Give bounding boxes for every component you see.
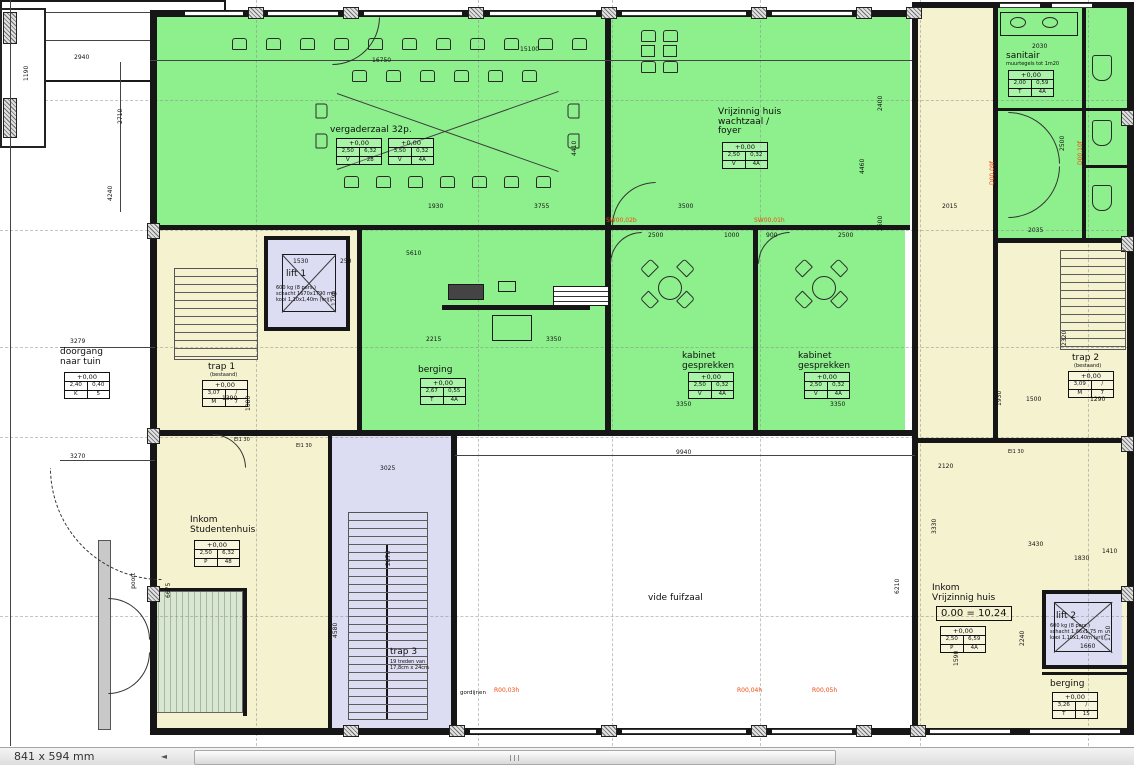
wall-sanitair <box>995 108 1134 111</box>
dimension: 900 <box>766 233 777 239</box>
chair <box>522 70 537 82</box>
room-label-vide: vide fuifzaal <box>648 594 703 604</box>
room-info-table: +0,002,000,59T4A <box>1008 70 1054 97</box>
dimension: 3350 <box>830 402 845 408</box>
dimension: 1590 <box>954 651 960 666</box>
column-hatch <box>1121 436 1134 452</box>
chair <box>300 38 315 50</box>
chair <box>488 70 503 82</box>
door-code: R00,04h <box>737 687 762 694</box>
sink <box>1042 17 1058 28</box>
chair <box>663 61 678 73</box>
column-hatch <box>601 725 617 737</box>
column-hatch <box>906 7 922 19</box>
dimension: 2710 <box>118 109 124 124</box>
dimension: 3025 <box>380 466 395 472</box>
room-info-table: +0,003,500,32V4A <box>388 138 434 165</box>
column-hatch <box>147 586 160 602</box>
room-info-table: +0,002,500,32V4A <box>688 372 734 399</box>
grid-axis <box>920 0 921 746</box>
dimension: 2320 <box>1062 331 1068 346</box>
floorplan-canvas[interactable]: vergaderzaal 32p. +0,002,506,32V28 +0,00… <box>0 0 1134 748</box>
chair <box>454 70 469 82</box>
room-info-table: +0,002,506,32P48 <box>194 540 240 567</box>
scrollbar-grip-icon <box>510 755 520 761</box>
room-info-table: +0,002,500,32V4A <box>804 372 850 399</box>
dimension: 1930 <box>428 204 443 210</box>
chair <box>402 38 417 50</box>
dimension: 250 <box>340 259 351 265</box>
chair <box>344 176 359 188</box>
window <box>1052 3 1092 8</box>
dimension: 15100 <box>520 47 539 53</box>
wall-sanitair <box>1082 8 1086 238</box>
dimension: 2500 <box>838 233 853 239</box>
room-sublabel: 600 kg (8 pers.) schacht 1670x1790 mm ko… <box>276 286 337 303</box>
grid-axis <box>0 230 1134 231</box>
wall <box>451 430 457 730</box>
dimension: 3350 <box>546 337 561 343</box>
bar-equipment <box>498 281 516 292</box>
dimension: 5610 <box>406 251 421 257</box>
bar-equipment <box>448 284 484 300</box>
wall <box>157 430 917 436</box>
dim-line <box>46 12 150 13</box>
column-hatch <box>1121 110 1134 126</box>
room-info-table: +0,002,506,59P4A <box>940 626 986 653</box>
dim-line <box>150 60 912 61</box>
dimension: 3330 <box>932 519 938 534</box>
dimension: 6675 <box>166 583 172 598</box>
floorplan-viewer: vergaderzaal 32p. +0,002,506,32V28 +0,00… <box>0 0 1134 765</box>
dimension: 3350 <box>676 402 691 408</box>
chair <box>641 30 656 42</box>
dim-line <box>46 40 150 41</box>
grid-axis <box>0 100 1134 101</box>
room-sublabel: 600 kg (8 pers.) schacht 1,66x1,75 m koo… <box>1050 624 1105 641</box>
door-code: R00,05h <box>812 687 837 694</box>
door-code: SW00,01h <box>754 217 785 224</box>
room-info-table: +0,002,400,40K5 <box>64 372 110 399</box>
fire-rating-label: EI1 30 <box>296 444 312 450</box>
dimension: 2876 <box>386 551 392 566</box>
dimension: 2500 <box>648 233 663 239</box>
horizontal-scrollbar-track[interactable] <box>184 749 1134 764</box>
dimension: 1390 <box>222 396 237 402</box>
room-info-table: +0,003,09/M7 <box>1068 371 1114 398</box>
wall-berging2 <box>1042 672 1130 675</box>
room-sublabel: (bestaand) <box>210 373 237 379</box>
chair <box>266 38 281 50</box>
column-hatch <box>449 725 465 737</box>
wall-lift1 <box>264 236 268 331</box>
room-label-lift1: lift 1 <box>286 270 306 280</box>
dimension: 2940 <box>74 55 89 61</box>
dimension: 1080 <box>246 396 252 411</box>
curtain-label: gordijnen <box>460 690 486 696</box>
dimension: 1790 <box>332 291 338 306</box>
column-hatch <box>1121 586 1134 602</box>
dimension: 2400 <box>878 96 884 111</box>
dimension: 1660 <box>1080 644 1095 650</box>
window <box>490 11 596 16</box>
chair <box>538 38 553 50</box>
wall <box>995 238 1134 243</box>
room-label-lift2: lift 2 <box>1056 612 1076 622</box>
side-table <box>663 45 677 57</box>
scroll-left-arrow-icon[interactable]: ◄ <box>144 752 184 761</box>
chair <box>420 70 435 82</box>
door-arc <box>108 652 150 694</box>
toilet <box>1092 185 1112 211</box>
column-hatch <box>147 223 160 239</box>
door-arc <box>108 598 150 640</box>
room-label-inkom-vrijzinnig: Inkom Vrijzinnig huis <box>932 584 995 603</box>
sink <box>1010 17 1026 28</box>
dimension: 4460 <box>860 159 866 174</box>
dim-line <box>120 62 121 212</box>
window <box>470 729 596 734</box>
window <box>930 729 1010 734</box>
window <box>364 11 462 16</box>
fire-rating-label: EI1 30 <box>1008 450 1024 456</box>
chair <box>232 38 247 50</box>
dimension: 1410 <box>1102 549 1117 555</box>
dimension: 4580 <box>333 623 339 638</box>
round-table <box>658 276 682 300</box>
chair <box>386 70 401 82</box>
chair <box>376 176 391 188</box>
dimension: 2500 <box>1060 136 1066 151</box>
dimension: 3755 <box>534 204 549 210</box>
room-label-vergaderzaal: vergaderzaal 32p. <box>330 126 412 136</box>
dimension: 2035 <box>1028 228 1043 234</box>
room-info-table: +0,003,07/M7 <box>202 380 248 407</box>
gate-label: poort <box>131 573 138 589</box>
room-label-berging: berging <box>418 366 452 376</box>
page-size-label: 841 x 594 mm <box>14 750 144 763</box>
column-hatch <box>468 7 484 19</box>
grid-axis <box>256 0 257 746</box>
wall <box>993 8 998 442</box>
room-info-table: +0,002,506,32V28 <box>336 138 382 165</box>
room-label-inkom-studentenhuis: Inkom Studentenhuis <box>190 516 255 535</box>
room-label-kabinet2: kabinet gesprekken <box>798 352 850 371</box>
room-fill-vide <box>457 436 912 728</box>
door-code: D00,09f <box>989 161 996 185</box>
stairs-trap1 <box>174 268 258 360</box>
dimension: 2835 <box>0 653 2 668</box>
dim-line <box>10 0 11 746</box>
chair <box>568 104 580 119</box>
wall <box>157 225 910 230</box>
dimension: 2215 <box>426 337 441 343</box>
chair <box>472 176 487 188</box>
stairs-trap3 <box>348 512 428 720</box>
chair <box>316 104 328 119</box>
door-code: R00,03h <box>494 687 519 694</box>
window <box>185 11 243 16</box>
dimension: 2600 <box>878 216 884 231</box>
dimension: 3500 <box>678 204 693 210</box>
dimension: 3430 <box>1028 542 1043 548</box>
chair <box>470 38 485 50</box>
window <box>268 11 338 16</box>
dim-line <box>60 460 155 461</box>
horizontal-scrollbar-thumb[interactable] <box>194 750 836 765</box>
chair <box>504 38 519 50</box>
dimension: 1750 <box>1106 626 1112 641</box>
wall <box>357 228 362 434</box>
dimension: 16750 <box>372 58 391 64</box>
column-hatch <box>343 725 359 737</box>
dimension: 1530 <box>293 259 308 265</box>
room-sublabel: 19 treden van 17,8cm x 24cm <box>390 660 429 672</box>
stairs-trap2 <box>1060 250 1126 350</box>
dimension: 2240 <box>1020 631 1026 646</box>
window <box>1030 729 1120 734</box>
room-info-table: +0,002,500,32V4A <box>722 142 768 169</box>
room-label-trap3: trap 3 <box>390 648 417 658</box>
side-table <box>641 45 655 57</box>
window <box>1000 3 1040 8</box>
room-label-berging2: berging <box>1050 680 1084 690</box>
kitchen-unit <box>492 315 532 341</box>
grid-axis <box>0 347 1134 348</box>
grid-axis <box>612 0 613 746</box>
wall-lift1 <box>264 236 350 240</box>
window <box>772 11 852 16</box>
chair <box>316 134 328 149</box>
wall-lift1 <box>346 236 350 331</box>
column-hatch <box>601 7 617 19</box>
dimension: 8900 <box>0 421 2 436</box>
room-sublabel: muurtegels tot 1m20 <box>1006 62 1059 68</box>
column-hatch <box>147 428 160 444</box>
column-hatch <box>856 725 872 737</box>
room-sublabel: (bestaand) <box>1074 364 1101 370</box>
wall-sanitair <box>1082 165 1134 168</box>
dimension: 1000 <box>724 233 739 239</box>
chair <box>352 70 367 82</box>
chair <box>408 176 423 188</box>
grid-axis <box>478 0 479 746</box>
room-label-kabinet1: kabinet gesprekken <box>682 352 734 371</box>
window <box>622 729 746 734</box>
chair <box>641 61 656 73</box>
door-code: D00,10f <box>1077 141 1084 165</box>
window <box>622 11 746 16</box>
chair <box>504 176 519 188</box>
level-box: 0.00 = 10.24 <box>936 606 1012 621</box>
wall <box>150 10 157 735</box>
toilet <box>1092 55 1112 81</box>
dimension: 4240 <box>108 186 114 201</box>
column-hatch <box>751 725 767 737</box>
dimension: 3270 <box>70 454 85 460</box>
dimension: 1830 <box>1074 556 1089 562</box>
wall-lift2 <box>1042 590 1130 594</box>
round-table <box>812 276 836 300</box>
dimension: 1500 <box>1026 397 1041 403</box>
wall <box>912 438 1134 443</box>
wall-lift1 <box>264 327 350 331</box>
wall-lift2 <box>1042 590 1046 669</box>
terrace-decking <box>152 591 243 713</box>
chair <box>663 30 678 42</box>
dimension: 2120 <box>938 464 953 470</box>
window <box>772 729 852 734</box>
chair <box>440 176 455 188</box>
dimension: 6200 <box>0 186 2 201</box>
status-bar: 841 x 594 mm ◄ <box>0 747 1134 765</box>
bar-shelf <box>553 286 609 306</box>
column-hatch <box>751 7 767 19</box>
column-hatch <box>856 7 872 19</box>
door-code: SW00,02b <box>606 217 637 224</box>
dimension: 1290 <box>1090 397 1105 403</box>
room-label-doorgang: doorgang naar tuin <box>60 348 103 367</box>
dimension: 3279 <box>70 339 85 345</box>
fire-rating-label: EI1 30 <box>234 438 250 444</box>
toilet <box>1092 120 1112 146</box>
dimension: 1190 <box>24 66 30 81</box>
dimension: 6210 <box>895 579 901 594</box>
chair <box>436 38 451 50</box>
dimension: 2015 <box>942 204 957 210</box>
room-info-table: +0,003,26/T15 <box>1052 692 1098 719</box>
gate-arc <box>50 468 162 580</box>
column-hatch <box>248 7 264 19</box>
wall-terrace <box>243 588 247 716</box>
column-hatch <box>910 725 926 737</box>
chair <box>536 176 551 188</box>
dimension: 9940 <box>676 450 691 456</box>
dimension: 4410 <box>572 141 578 156</box>
dimension: 2030 <box>1032 44 1047 50</box>
chair <box>572 38 587 50</box>
dimension: 1930 <box>997 391 1003 406</box>
room-info-table: +0,002,670,55T4A <box>420 378 466 405</box>
room-label-foyer: Vrijzinnig huis wachtzaal / foyer <box>718 108 781 137</box>
wall <box>912 8 918 730</box>
wall-lift2 <box>1042 665 1130 669</box>
wall <box>328 436 332 730</box>
dimension: 3370 <box>0 536 2 551</box>
